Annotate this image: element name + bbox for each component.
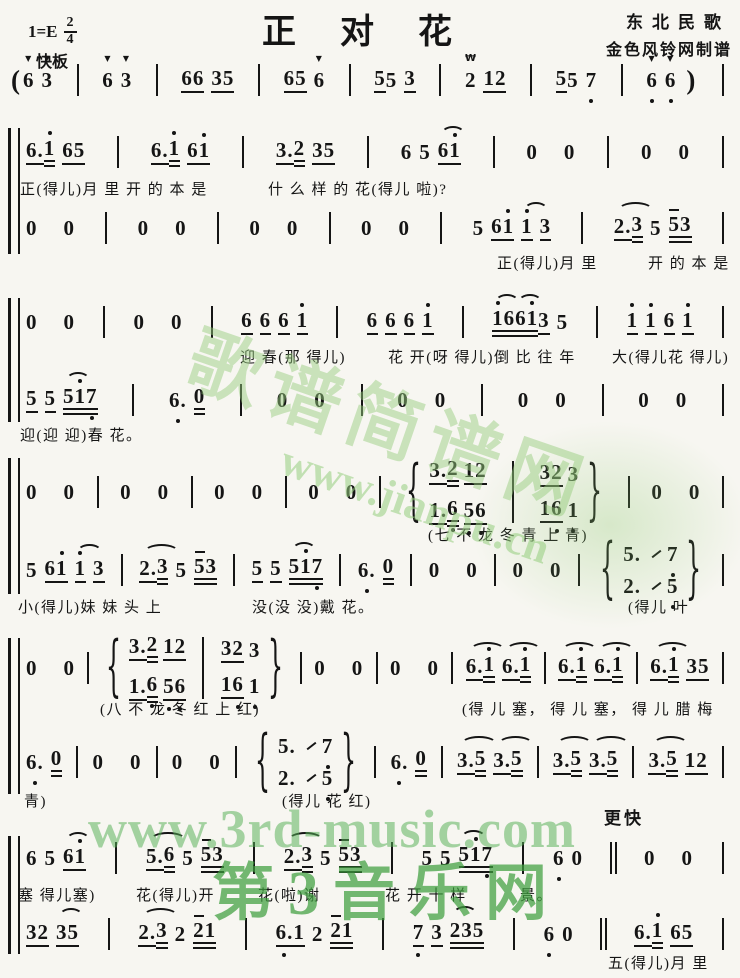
- octave-dot-high: [530, 301, 534, 305]
- octave-dot-high: [630, 303, 634, 307]
- octave-dot-low: [315, 586, 319, 590]
- barline: [103, 306, 105, 338]
- tie-overline: [669, 209, 679, 211]
- measure: {3.2121.656: [102, 634, 190, 703]
- note: 3: [431, 922, 443, 947]
- barline: [339, 554, 341, 586]
- notation-line: 32352.32216.122173235606.165: [26, 916, 726, 952]
- open-brace: {: [255, 729, 270, 795]
- note: 1: [205, 920, 217, 949]
- note: 5: [26, 388, 38, 413]
- note: 3: [312, 140, 324, 165]
- barline: [77, 64, 79, 96]
- measure: 73235: [413, 920, 485, 949]
- rest: 0: [252, 482, 264, 503]
- octave-dot-high: [579, 647, 583, 651]
- note: 6: [491, 216, 503, 241]
- note: 2₩: [465, 70, 477, 91]
- system-bracket: [8, 638, 20, 794]
- note: 3.: [129, 636, 147, 661]
- close-brace: }: [587, 459, 602, 525]
- note: 3: [205, 556, 217, 585]
- note: 12: [483, 68, 506, 93]
- open-paren: (: [11, 67, 20, 94]
- octave-dot-low: [365, 589, 369, 593]
- measure: 00: [134, 312, 183, 333]
- tie-overline: [195, 551, 205, 553]
- note: 1: [75, 846, 87, 871]
- note: 5: [464, 500, 476, 525]
- measure: 00: [308, 482, 357, 503]
- barline: [481, 384, 483, 416]
- note: 5: [650, 218, 662, 239]
- measure: 6.165: [634, 920, 693, 949]
- note: 1: [75, 386, 87, 415]
- notation-line: 6.00000{5.72.5}6.03.53.53.53.53.512: [26, 744, 726, 780]
- note: 3: [680, 214, 692, 243]
- lyrics-segment: 迎 春(那 得儿): [240, 346, 346, 367]
- measure: 2.3553: [139, 556, 217, 585]
- rest: 0: [277, 390, 289, 411]
- meter-numerator: 2: [64, 16, 77, 33]
- note: 6.: [466, 656, 484, 681]
- rest: 0: [92, 752, 104, 773]
- notation-line: 555176.000000000: [26, 382, 726, 418]
- key-signature: 1=E 2 4: [28, 16, 77, 47]
- measure: 55517: [252, 556, 324, 585]
- rest: 0: [562, 924, 574, 945]
- barline: [440, 212, 442, 244]
- rest: 0: [352, 658, 364, 679]
- measure: 00: [214, 482, 263, 503]
- note: 1: [297, 310, 309, 335]
- note: 2.: [623, 576, 641, 597]
- note: 1: [521, 216, 533, 241]
- note: 3: [461, 920, 473, 949]
- note: 6: [670, 922, 682, 947]
- note: 6.: [558, 656, 576, 681]
- note: 2: [38, 922, 50, 947]
- note: 6.: [594, 656, 612, 681]
- trill-mark: ₩: [465, 54, 477, 64]
- note: 5: [339, 844, 351, 873]
- lyrics-segment: (七 不 龙 冬 青 上 青): [428, 524, 588, 545]
- tie-overline: [202, 839, 212, 841]
- lyrics-segment: 大(得儿花 得儿): [612, 346, 729, 367]
- note: 7: [667, 544, 679, 565]
- key-label: 1=E: [28, 22, 58, 42]
- octave-dot-high: [523, 647, 527, 651]
- note: 3: [221, 638, 233, 663]
- octave-dot-high: [202, 133, 206, 137]
- barline: [596, 306, 598, 338]
- chord-stack-row: 161: [221, 674, 261, 699]
- lyrics-segment: 正(得儿)月 里 开 的 本 是: [20, 178, 208, 199]
- note: 1: [199, 140, 211, 165]
- note: 1: [668, 654, 680, 683]
- chord-stack: 3.2121.656: [429, 458, 486, 527]
- notation-line: 00{3.2121.656323161}00006.16.16.16.16.13…: [26, 650, 726, 686]
- note: 6: [232, 674, 244, 699]
- note: 6▼: [102, 70, 114, 91]
- note: 2: [175, 924, 187, 945]
- note: 6.: [650, 656, 668, 681]
- barline: [367, 136, 369, 168]
- barline: [581, 212, 583, 244]
- note: 5: [666, 748, 678, 777]
- measure: 00: [397, 390, 446, 411]
- barline: [632, 746, 634, 778]
- measure: 6.1221: [276, 920, 354, 949]
- note: 5: [324, 140, 336, 165]
- note: 3▼: [121, 70, 133, 91]
- note: 5: [419, 142, 431, 163]
- note: 3: [540, 216, 552, 241]
- note: 5: [163, 676, 175, 701]
- measure: 00: [249, 218, 298, 239]
- note: 7: [586, 70, 598, 91]
- note: 3: [686, 656, 698, 681]
- rest: 0: [130, 752, 142, 773]
- note: 3: [350, 844, 362, 873]
- note: 1: [75, 558, 87, 583]
- note: 5: [511, 748, 523, 777]
- note: 5: [45, 388, 57, 413]
- rest: 0: [679, 142, 691, 163]
- octave-dot-high: [48, 131, 52, 135]
- barline: [391, 842, 393, 874]
- measure: 00: [512, 560, 561, 581]
- note: 2: [450, 920, 462, 949]
- chord-stack: 323161: [540, 462, 580, 523]
- rest: 0: [175, 218, 187, 239]
- chord-stack: 3.2121.656: [129, 634, 186, 703]
- measure: 2.3553: [614, 214, 692, 243]
- note: 6: [62, 140, 74, 165]
- rest: 0: [249, 218, 261, 239]
- open-brace: {: [600, 537, 615, 603]
- rest: 0: [120, 482, 132, 503]
- note: 3: [157, 556, 169, 585]
- barline: [512, 461, 514, 523]
- measure: 00: [641, 142, 690, 163]
- note: 3.: [553, 750, 571, 775]
- note: 5: [698, 656, 710, 681]
- rest: 0: [134, 312, 146, 333]
- note: 1: [169, 138, 181, 167]
- rest: 0: [64, 658, 76, 679]
- chord-stack-row: 161: [540, 498, 580, 523]
- barline: [108, 918, 110, 950]
- note: 1: [652, 920, 664, 949]
- rest: 0: [512, 560, 524, 581]
- note: 6.: [358, 560, 376, 581]
- note: 5: [182, 848, 194, 869]
- lyrics-segment: 景。: [520, 884, 553, 905]
- barline: [245, 918, 247, 950]
- octave-dot-high: [686, 303, 690, 307]
- rest: 0: [314, 658, 326, 679]
- note: 6▼: [23, 70, 35, 91]
- lyrics-segment: (得儿 叶: [628, 596, 689, 617]
- lyrics-segment: 开 的 本 是: [648, 252, 730, 273]
- octave-dot-high: [304, 549, 308, 553]
- accent-mark: ▼: [648, 55, 655, 63]
- measure: 323161}: [536, 462, 607, 523]
- accent-mark: ▼: [25, 55, 32, 63]
- note: 6.: [26, 752, 44, 773]
- barline: [211, 306, 213, 338]
- rest: 0: [390, 658, 402, 679]
- lyrics-segment: 花(得儿)开: [136, 884, 215, 905]
- rest: 0: [158, 482, 170, 503]
- chord-stack-row: 3.212: [129, 634, 186, 663]
- barline: [361, 384, 363, 416]
- measure: 60: [544, 924, 574, 945]
- note: 3.: [429, 460, 447, 485]
- measure: 00: [361, 218, 410, 239]
- note: 5: [270, 558, 282, 583]
- rest: 0: [287, 218, 299, 239]
- octave-dot-low: [650, 99, 654, 103]
- note: 1: [492, 308, 504, 337]
- barline: [602, 384, 604, 416]
- measure: 6▼6▼): [646, 67, 698, 94]
- grace-slash: [652, 582, 662, 590]
- note: 6: [551, 498, 563, 523]
- note: 3▼: [42, 70, 54, 91]
- note: 3: [212, 844, 224, 873]
- note: 1: [520, 654, 532, 683]
- note: 3: [56, 922, 68, 947]
- rest: 0: [415, 748, 427, 777]
- chord-stack-row: 323: [221, 638, 261, 663]
- note: 2.: [138, 922, 156, 947]
- measure: 00: [644, 848, 693, 869]
- note: 2: [232, 638, 244, 663]
- note: 2.: [614, 216, 632, 241]
- lyrics-segment: 正(得儿)月 里: [497, 252, 598, 273]
- measure: 3235: [26, 922, 79, 947]
- note: 6: [544, 924, 556, 945]
- note: 5.: [146, 846, 164, 871]
- rest: 0: [209, 752, 221, 773]
- note: 65: [284, 68, 307, 93]
- octave-dot-low: [397, 781, 401, 785]
- rest: 0: [346, 482, 358, 503]
- chord-stack: 5.72.5: [278, 736, 333, 789]
- octave-dot-low: [589, 99, 593, 103]
- note: 5: [252, 558, 264, 583]
- barline: [97, 476, 99, 508]
- note: 1: [470, 844, 482, 873]
- note: 1: [540, 498, 552, 523]
- barline: [285, 476, 287, 508]
- chord-stack-row: 2.5: [278, 768, 333, 789]
- note: 7: [322, 736, 334, 757]
- close-brace: }: [686, 537, 701, 603]
- barline: [329, 212, 331, 244]
- credit-source: 东北民歌: [626, 8, 730, 33]
- rest: 0: [429, 560, 441, 581]
- note: 6.: [151, 140, 169, 165]
- rest: 0: [555, 390, 567, 411]
- octave-dot-high: [78, 839, 82, 843]
- rest: 0: [26, 482, 38, 503]
- system-bracket: [8, 298, 20, 422]
- grace-slash: [306, 742, 316, 750]
- lyrics-segment: 花 开(呀 得儿)倒 比 往 年: [388, 346, 576, 367]
- barline: [722, 384, 724, 416]
- octave-dot-low: [282, 953, 286, 957]
- note: 1: [163, 636, 175, 661]
- note: 3: [538, 310, 550, 335]
- barline: [132, 384, 134, 416]
- barline: [607, 136, 609, 168]
- note: 1: [645, 310, 657, 335]
- barline: [722, 554, 724, 586]
- notation-line: 561132.3553555176.00000{5.72.5}: [26, 552, 726, 588]
- note: 2: [175, 636, 187, 661]
- note: 6: [63, 846, 75, 871]
- note: 1: [627, 310, 639, 335]
- note: 1: [576, 654, 588, 683]
- barline: [382, 918, 384, 950]
- tempo-change-marking: 更快: [604, 804, 644, 829]
- notation-line: 00000000{3.2121.656323161}00: [26, 474, 726, 510]
- measure: 6561: [401, 140, 461, 165]
- accent-mark: ▼: [316, 55, 323, 63]
- rest: 0: [427, 658, 439, 679]
- rest: 0: [550, 560, 562, 581]
- note: 6▼: [314, 70, 326, 91]
- measure: 00: [138, 218, 187, 239]
- measure: 656▼: [284, 68, 326, 93]
- system-bracket: [8, 836, 20, 954]
- barline: [156, 746, 158, 778]
- note: 5.: [278, 736, 296, 757]
- note: 1: [422, 310, 434, 335]
- note: 3.: [648, 750, 666, 775]
- measure: 00: [172, 752, 221, 773]
- note: 5: [473, 218, 485, 239]
- measure: 55517: [422, 844, 494, 873]
- note: 6: [187, 140, 199, 165]
- note: 3: [568, 464, 580, 485]
- measure: 2.3221: [138, 920, 216, 949]
- note: 2: [551, 462, 563, 487]
- measure: {5.72.5}: [596, 544, 705, 597]
- measure: 00: [638, 390, 687, 411]
- barline: [410, 554, 412, 586]
- note: 6▼: [665, 70, 677, 91]
- rest: 0: [644, 848, 656, 869]
- measure: 166135: [492, 308, 568, 337]
- rest: 0: [172, 752, 184, 773]
- barline: [258, 64, 260, 96]
- rest: 0: [171, 312, 183, 333]
- measure: (6▼3▼: [8, 67, 53, 94]
- accent-mark: ▼: [123, 55, 130, 63]
- note: 7: [482, 844, 494, 873]
- note: 3.: [457, 750, 475, 775]
- octave-dot-low: [557, 877, 561, 881]
- note: 6: [475, 500, 487, 525]
- open-brace: {: [406, 459, 421, 525]
- note: 1: [293, 922, 305, 947]
- lyrics-segment: (得儿 花 红): [282, 790, 372, 811]
- system-bracket: [8, 458, 20, 594]
- barline: [374, 746, 376, 778]
- double-barline: [610, 842, 617, 874]
- open-brace: {: [106, 635, 121, 701]
- measure: 00: [26, 312, 75, 333]
- note: 2: [475, 460, 487, 485]
- note: 6: [515, 308, 527, 337]
- measure: 323161}: [217, 638, 288, 699]
- barline: [462, 306, 464, 338]
- measure: 6.135: [650, 654, 709, 683]
- measure: 55517: [26, 386, 98, 415]
- barline: [530, 64, 532, 96]
- barline: [722, 918, 724, 950]
- barline: [121, 554, 123, 586]
- note: 3: [302, 844, 314, 873]
- note: 3: [26, 922, 38, 947]
- measure: {5.72.5}: [251, 736, 360, 789]
- note: 6.: [502, 656, 520, 681]
- note: 3: [632, 214, 644, 243]
- note: 5: [567, 70, 579, 91]
- note: 6: [664, 310, 676, 335]
- accent-mark: ▼: [667, 55, 674, 63]
- note: 5: [571, 748, 583, 777]
- rest: 0: [526, 142, 538, 163]
- measure: 3.235: [276, 138, 335, 167]
- rest: 0: [518, 390, 530, 411]
- note: 5: [667, 576, 679, 597]
- sheet-music-page: { "meta": { "title": "正对花", "key": "1=E"…: [0, 0, 740, 978]
- measure: 00: [651, 482, 700, 503]
- measure: 6.161: [151, 138, 210, 167]
- barline: [722, 842, 724, 874]
- note: 3.: [276, 140, 294, 165]
- chord-stack: 5.72.5: [623, 544, 678, 597]
- barline: [522, 842, 524, 874]
- note: 5: [26, 560, 38, 581]
- note: 6.: [26, 140, 44, 165]
- rest: 0: [398, 218, 410, 239]
- note: 2: [147, 634, 159, 663]
- note: 5: [607, 748, 619, 777]
- barline: [722, 212, 724, 244]
- note: 1: [568, 500, 580, 521]
- note: 5: [374, 68, 386, 93]
- note: 1: [503, 216, 515, 241]
- note: 2: [294, 138, 306, 167]
- note: 1: [527, 308, 539, 337]
- barline: [336, 306, 338, 338]
- octave-dot-high: [672, 647, 676, 651]
- note: 2: [312, 924, 324, 945]
- note: 1: [449, 140, 461, 165]
- note: 6: [447, 498, 459, 527]
- barline: [379, 476, 381, 508]
- measure: 60: [553, 848, 583, 869]
- measure: 00: [26, 658, 75, 679]
- measure: 56113: [26, 558, 105, 583]
- barline: [636, 652, 638, 684]
